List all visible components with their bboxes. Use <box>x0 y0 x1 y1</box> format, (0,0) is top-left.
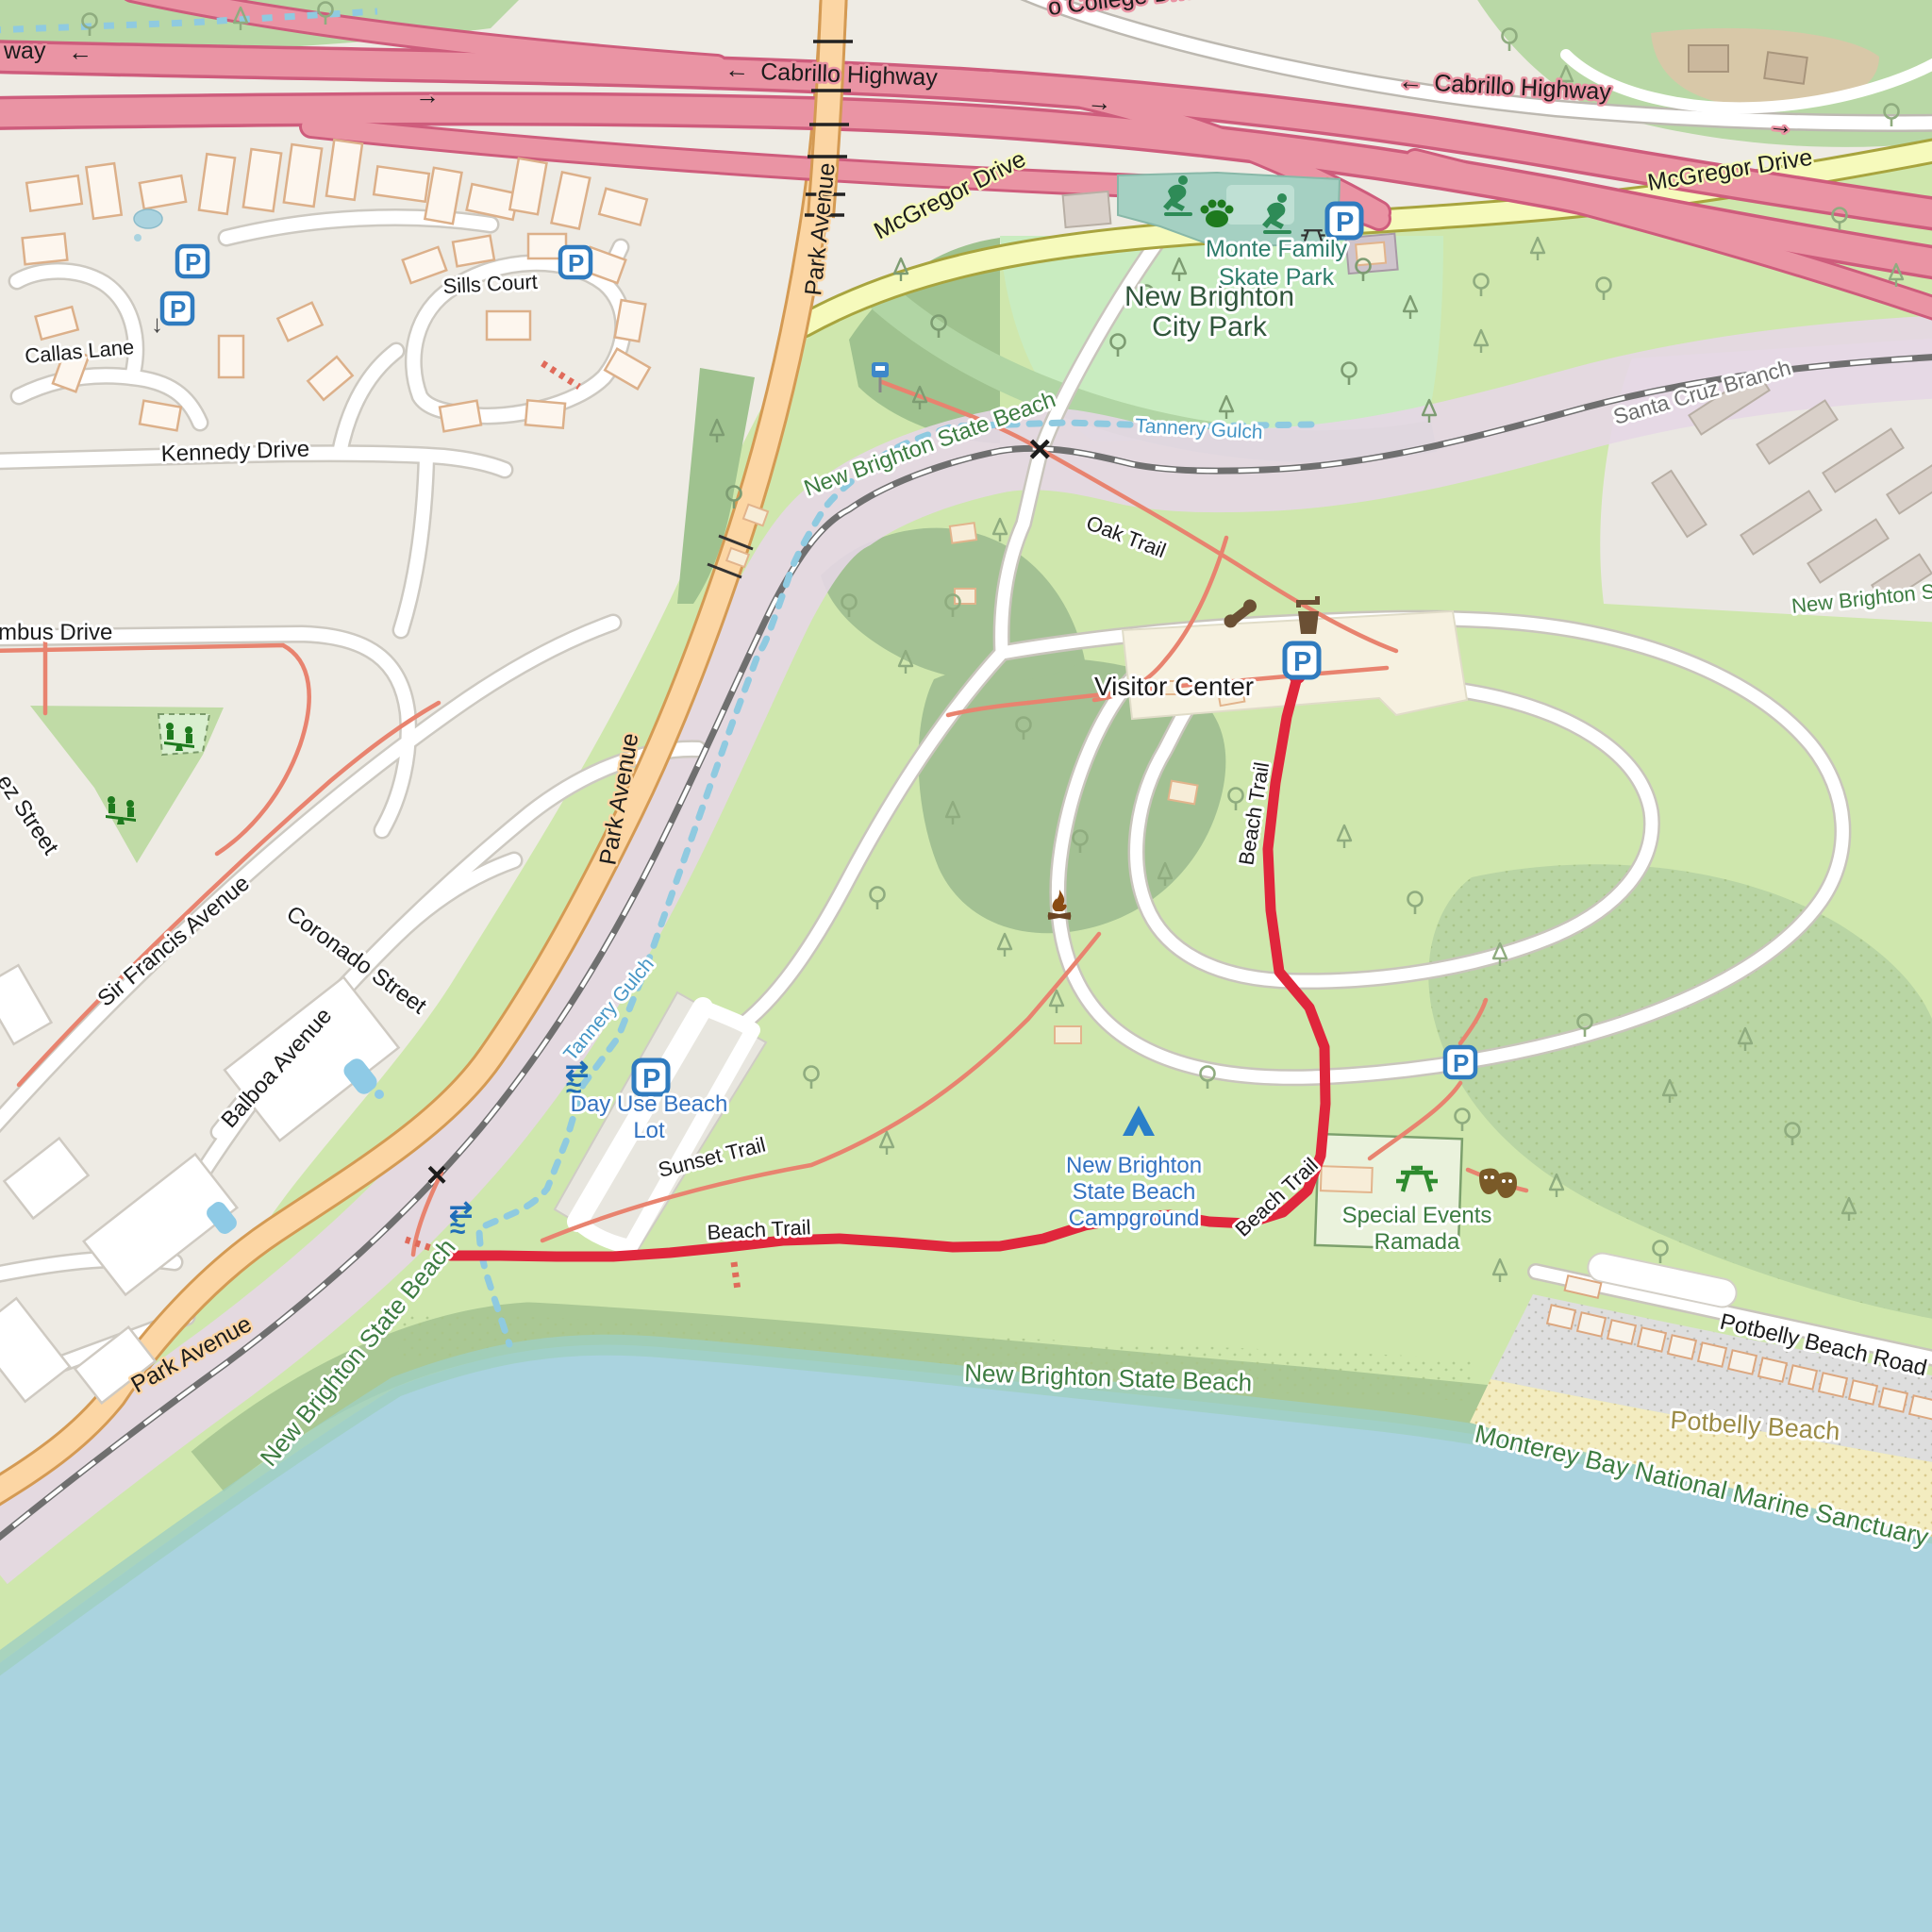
city-park-label: City Park <box>1152 311 1268 342</box>
map-svg: × × ⇄ ≈ ⇄ ≈ ↓ P P P P P P P o Col <box>0 0 1932 1932</box>
campground-label: New Brighton <box>1066 1153 1202 1178</box>
campground-label: State Beach <box>1073 1179 1196 1205</box>
parking-icon: P <box>560 247 591 277</box>
day-use-lot-label: Day Use Beach <box>571 1091 728 1117</box>
oneway-arrow: → <box>415 81 440 109</box>
columbus-drive-label: mbus Drive <box>0 620 112 645</box>
parking-icon: P <box>1285 643 1319 677</box>
kennedy-drive-label: Kennedy Drive <box>160 437 309 467</box>
pond <box>134 209 162 228</box>
parking-icon: P <box>177 246 208 276</box>
svg-text:P: P <box>568 249 584 277</box>
rail-crossing-icon: × <box>1028 426 1052 471</box>
parking-icon: P <box>162 293 192 324</box>
visitor-center-label: Visitor Center <box>1094 672 1254 701</box>
oneway-arrow: → <box>1087 87 1113 117</box>
sills-court-label: Sills Court <box>442 270 538 298</box>
skate-park-label: Skate Park <box>1219 264 1335 291</box>
svg-text:P: P <box>1336 208 1354 238</box>
oneway-arrow: ← <box>68 38 92 66</box>
campground-label: Campground <box>1069 1206 1200 1231</box>
playground-area-outline <box>158 714 209 755</box>
map-canvas[interactable]: × × ⇄ ≈ ⇄ ≈ ↓ P P P P P P P o Col <box>0 0 1932 1932</box>
oneway-arrow: → <box>1767 109 1794 141</box>
svg-text:P: P <box>1453 1049 1469 1077</box>
pool-1b <box>375 1090 384 1099</box>
day-use-lot-label: Lot <box>633 1118 665 1143</box>
pond-small <box>134 234 142 241</box>
svg-text:P: P <box>1293 647 1311 677</box>
svg-text:P: P <box>185 248 201 276</box>
parking-icon: P <box>1445 1047 1475 1077</box>
skate-park-label: Monte Family <box>1206 236 1348 262</box>
parking-icon: P <box>634 1060 668 1094</box>
svg-text:≈: ≈ <box>450 1213 465 1244</box>
svg-text:P: P <box>642 1064 660 1094</box>
oneway-arrow: ← <box>1398 66 1424 95</box>
ramada-label: Special Events <box>1342 1203 1492 1228</box>
ramada-label: Ramada <box>1374 1229 1460 1255</box>
oneway-arrow: ← <box>724 55 750 84</box>
svg-text:P: P <box>170 295 186 324</box>
rail-crossing-icon: × <box>426 1156 447 1195</box>
parking-icon: P <box>1327 204 1361 238</box>
cabrillo-partial-label: way <box>3 38 46 64</box>
